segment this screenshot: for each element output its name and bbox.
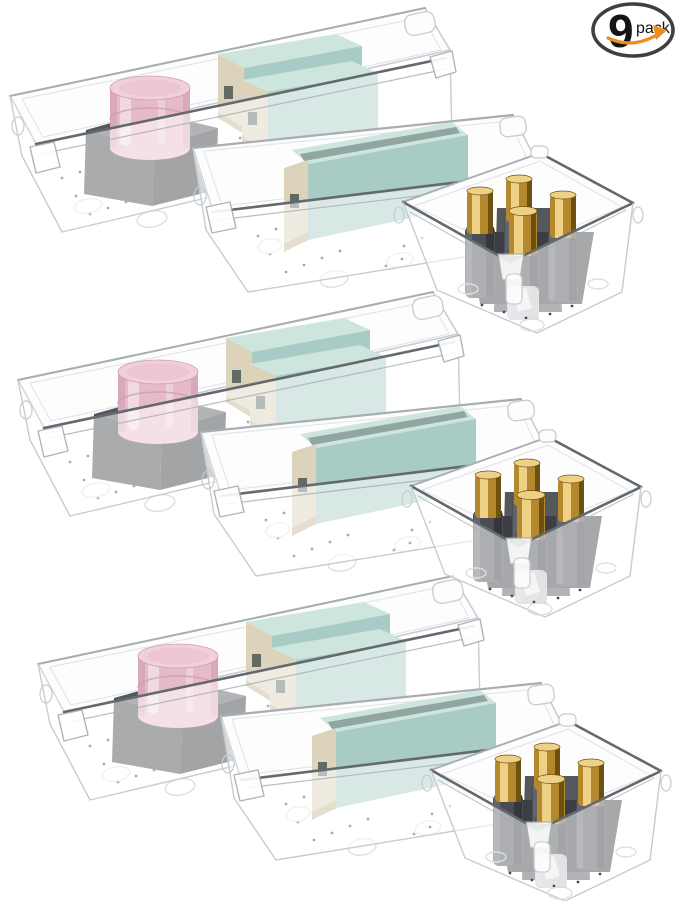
product-set-row-3 [38, 576, 671, 901]
pack-count: 9 [608, 5, 634, 57]
product-image[interactable]: 9 pack [0, 0, 679, 901]
product-set-row-2 [18, 292, 651, 617]
organizer-product-photo: 9 pack [0, 0, 679, 901]
pack-badge: 9 pack [593, 4, 673, 57]
pack-unit: pack [636, 20, 671, 37]
product-set-row-1 [10, 8, 643, 333]
